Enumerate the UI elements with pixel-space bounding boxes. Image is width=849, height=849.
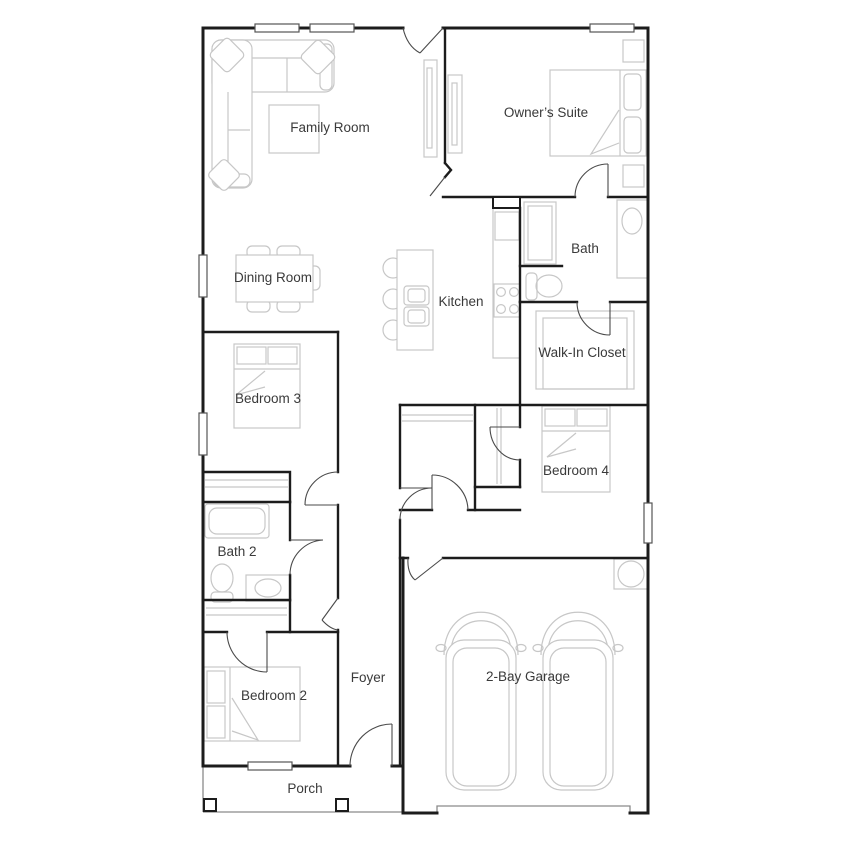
room-label-bath: Bath (571, 241, 599, 256)
door-arc (227, 632, 267, 672)
window (199, 255, 207, 297)
bedroom2-bed (204, 667, 300, 741)
window (248, 762, 292, 770)
bedroom3-closet-shelf (205, 480, 288, 487)
stove (494, 284, 520, 317)
linen-shelf (206, 608, 287, 615)
bedroom4-bed (542, 406, 610, 492)
window (255, 24, 299, 32)
door-arc (490, 427, 520, 460)
shower (524, 202, 556, 264)
room-label-kitchen: Kitchen (438, 294, 483, 309)
floor-plan-canvas: Family Room Owner’s Suite Dining Room Ki… (0, 0, 849, 849)
door-arc (350, 724, 392, 766)
door-arc (322, 598, 338, 630)
door-arc (400, 488, 432, 520)
furniture-layer (204, 37, 648, 790)
room-label-owners-suite: Owner’s Suite (504, 105, 588, 120)
room-label-bedroom-4: Bedroom 4 (543, 463, 610, 478)
door-arc (290, 540, 323, 575)
garage-door (437, 806, 630, 813)
media-console (424, 60, 437, 157)
window (310, 24, 354, 32)
floor-plan-page: Family Room Owner’s Suite Dining Room Ki… (0, 0, 849, 849)
door-arc (432, 475, 468, 510)
vanity-sink (617, 200, 648, 278)
room-label-bedroom-3: Bedroom 3 (235, 391, 301, 406)
vanity-sink-2 (246, 575, 291, 601)
room-label-garage: 2-Bay Garage (486, 669, 570, 684)
room-label-bath-2: Bath 2 (217, 544, 256, 559)
room-label-family-room: Family Room (290, 120, 370, 135)
room-label-porch: Porch (287, 781, 322, 796)
window (590, 24, 634, 32)
sectional-sofa (207, 37, 336, 192)
room-label-dining-room: Dining Room (234, 270, 312, 285)
window (199, 413, 207, 455)
toilet (526, 273, 562, 300)
dresser (448, 75, 462, 153)
door-arc (408, 558, 443, 580)
porch-post (204, 799, 216, 811)
room-label-bedroom-2: Bedroom 2 (241, 688, 307, 703)
laundry-shelf (402, 415, 473, 421)
window (644, 503, 652, 543)
bedroom4-closet-rod (497, 408, 501, 484)
room-label-walk-in-closet: Walk-In Closet (538, 345, 626, 360)
room-label-foyer: Foyer (351, 670, 386, 685)
kitchen-counter (493, 208, 520, 358)
car (436, 612, 526, 790)
door-arc (430, 177, 445, 196)
bathtub (205, 504, 269, 538)
bedroom3-bed (234, 344, 300, 428)
car (533, 612, 623, 790)
refrigerator (495, 212, 519, 240)
door-arc (575, 164, 608, 197)
door-arc (305, 472, 338, 505)
kitchen-island (383, 250, 433, 350)
nightstand (623, 165, 644, 187)
door-arc (403, 28, 443, 53)
nightstand (623, 40, 644, 62)
toilet-2 (211, 564, 233, 602)
water-heater (614, 559, 648, 589)
porch-post (336, 799, 348, 811)
